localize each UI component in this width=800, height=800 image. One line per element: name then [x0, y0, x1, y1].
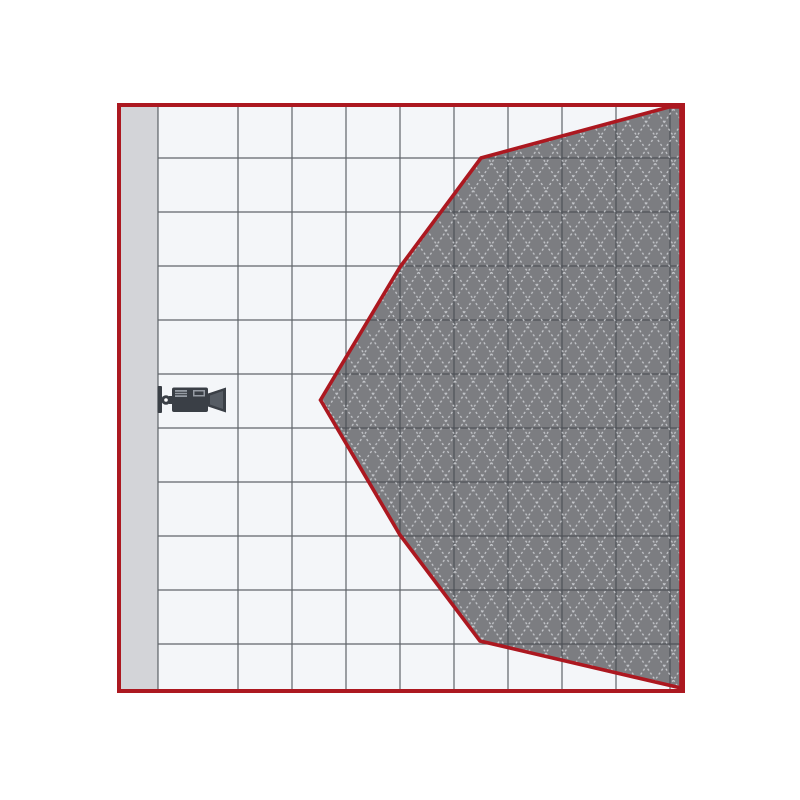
field-of-view-diagram [0, 0, 800, 800]
camera-vent [175, 390, 187, 397]
camera-hinge-hole [164, 398, 168, 402]
wall-strip [121, 107, 158, 689]
coverage-diagram-page [0, 0, 800, 800]
camera-panel-inset [195, 392, 204, 396]
